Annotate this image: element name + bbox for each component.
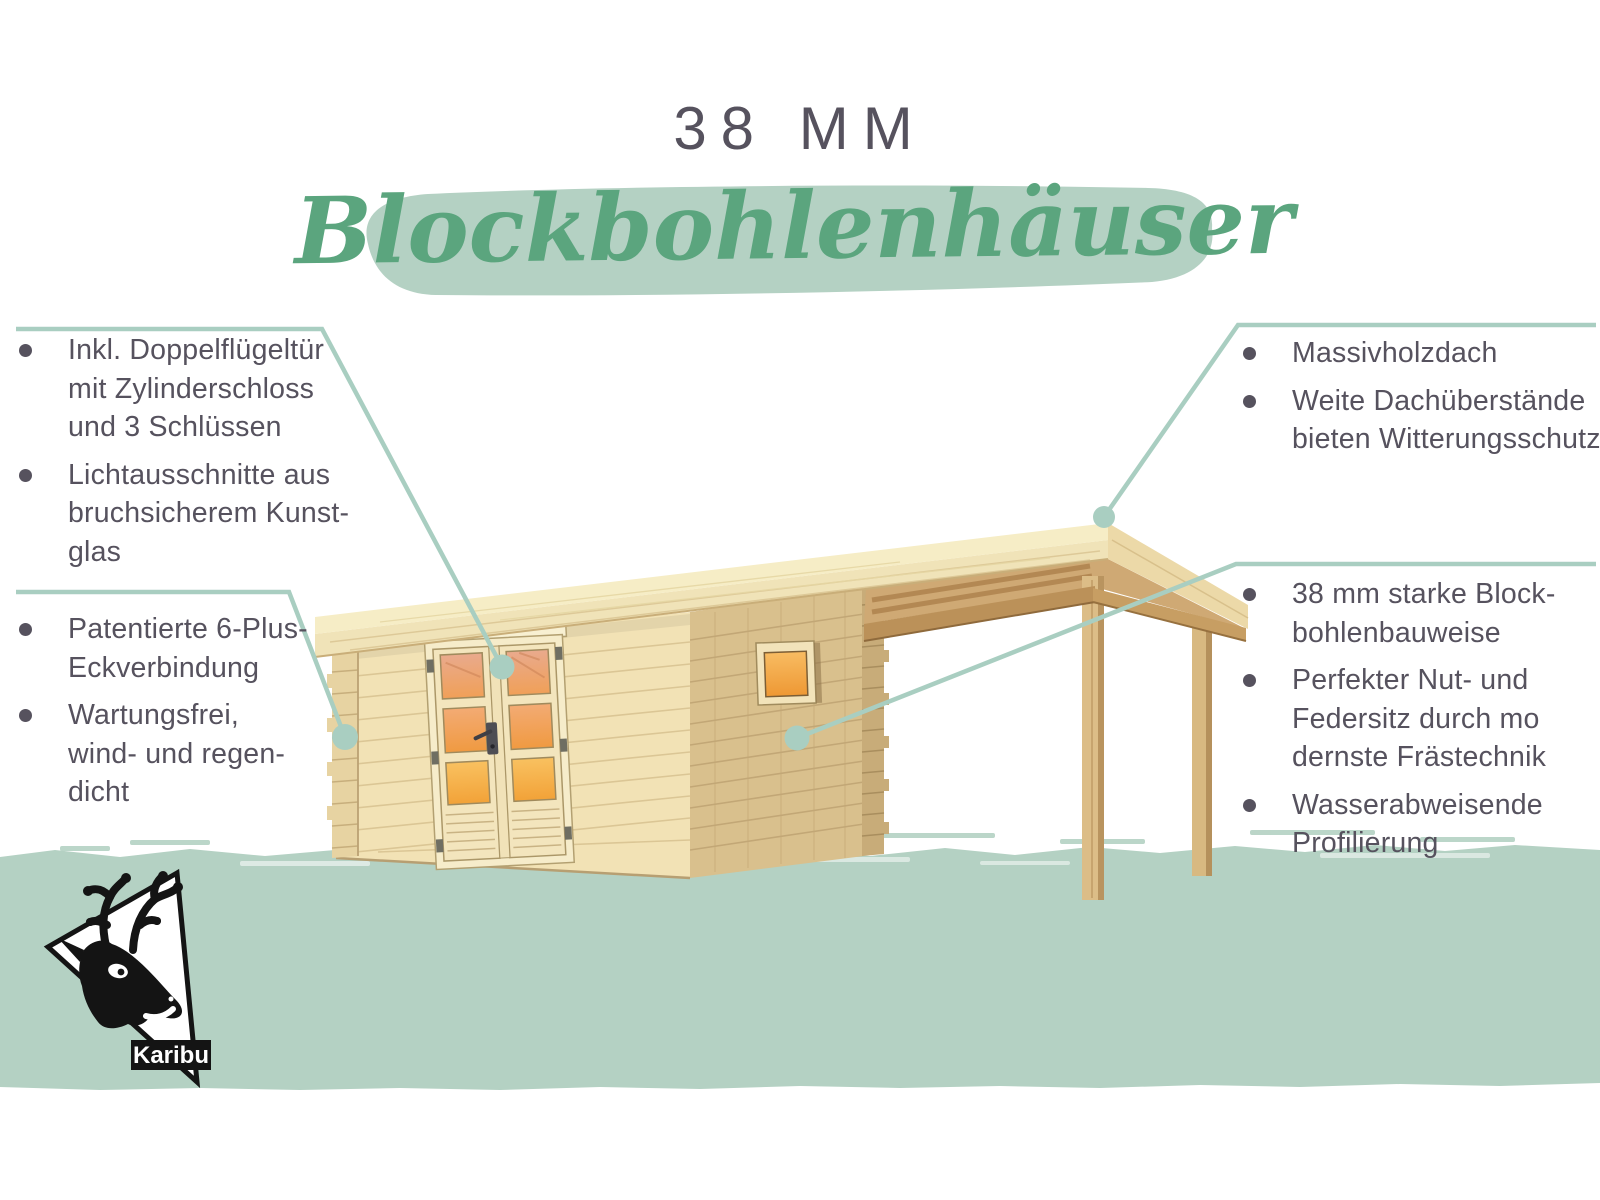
canopy xyxy=(864,559,1246,900)
feature-line: Profilierung xyxy=(1292,824,1556,863)
feature-line: bohlenbauweise xyxy=(1292,614,1556,653)
feature-item: Perfekter Nut- und Federsitz durch mo de… xyxy=(1240,661,1556,777)
callout-dot-wall xyxy=(785,726,810,751)
bullet-icon xyxy=(19,469,32,482)
feature-item: Massivholzdach xyxy=(1240,334,1600,373)
feature-line: dernste Frästechnik xyxy=(1292,738,1556,777)
callout-dot-corner xyxy=(332,724,358,750)
poster: Karibu 38 MM Blockbohlenhäuser Inkl. Dop… xyxy=(0,0,1600,1200)
page-subtitle-script: Blockbohlenhäuser xyxy=(0,164,1595,289)
callout-dot-roof xyxy=(1093,506,1115,528)
feature-line: Patentierte 6-Plus- xyxy=(68,610,308,649)
feature-line: mit Zylinderschloss xyxy=(68,370,349,409)
callout-dot-door xyxy=(490,655,515,680)
feature-line: glas xyxy=(68,533,349,572)
feature-line: Eckverbindung xyxy=(68,649,308,688)
feature-item: 38 mm starke Block- bohlenbauweise xyxy=(1240,575,1556,652)
feature-item: Patentierte 6-Plus- Eckverbindung xyxy=(16,610,308,687)
feature-item: Wasserabweisende Profilierung xyxy=(1240,786,1556,863)
feature-line: Inkl. Doppelflügeltür xyxy=(68,331,349,370)
feature-line: Weite Dachüberstände xyxy=(1292,382,1600,421)
feature-line: Massivholzdach xyxy=(1292,334,1600,373)
feature-line: Wartungsfrei, xyxy=(68,696,308,735)
feature-line: dicht xyxy=(68,773,308,812)
feature-item: Lichtausschnitte aus bruchsicherem Kunst… xyxy=(16,456,349,572)
bullet-icon xyxy=(19,344,32,357)
feature-line: Perfekter Nut- und xyxy=(1292,661,1556,700)
bullet-icon xyxy=(1243,674,1256,687)
feature-block-top-right: Massivholzdach Weite Dachüberstände biet… xyxy=(1240,334,1600,468)
bullet-icon xyxy=(19,623,32,636)
logo-label: Karibu xyxy=(133,1042,209,1069)
bullet-icon xyxy=(1243,799,1256,812)
feature-line: wind- und regen- xyxy=(68,735,308,774)
corner-joint-left xyxy=(327,649,358,858)
feature-item: Wartungsfrei, wind- und regen- dicht xyxy=(16,696,308,812)
page-title: 38 MM xyxy=(0,94,1600,163)
feature-line: bieten Witterungsschutz xyxy=(1292,420,1600,459)
feature-line: Wasserabweisende xyxy=(1292,786,1556,825)
feature-item: Inkl. Doppelflügeltür mit Zylinderschlos… xyxy=(16,331,349,447)
bullet-icon xyxy=(1243,347,1256,360)
bullet-icon xyxy=(19,709,32,722)
feature-block-bottom-right: 38 mm starke Block- bohlenbauweise Perfe… xyxy=(1240,575,1556,872)
feature-block-bottom-left: Patentierte 6-Plus- Eckverbindung Wartun… xyxy=(16,610,308,821)
feature-line: bruchsicherem Kunst- xyxy=(68,494,349,533)
bullet-icon xyxy=(1243,588,1256,601)
side-window xyxy=(756,641,822,705)
feature-item: Weite Dachüberstände bieten Witterungssc… xyxy=(1240,382,1600,459)
feature-line: und 3 Schlüssen xyxy=(68,408,349,447)
feature-block-top-left: Inkl. Doppelflügeltür mit Zylinderschlos… xyxy=(16,331,349,580)
bullet-icon xyxy=(1243,395,1256,408)
feature-line: Lichtausschnitte aus xyxy=(68,456,349,495)
feature-line: Federsitz durch mo xyxy=(1292,700,1556,739)
feature-line: 38 mm starke Block- xyxy=(1292,575,1556,614)
canopy-post-rear xyxy=(1192,622,1212,876)
